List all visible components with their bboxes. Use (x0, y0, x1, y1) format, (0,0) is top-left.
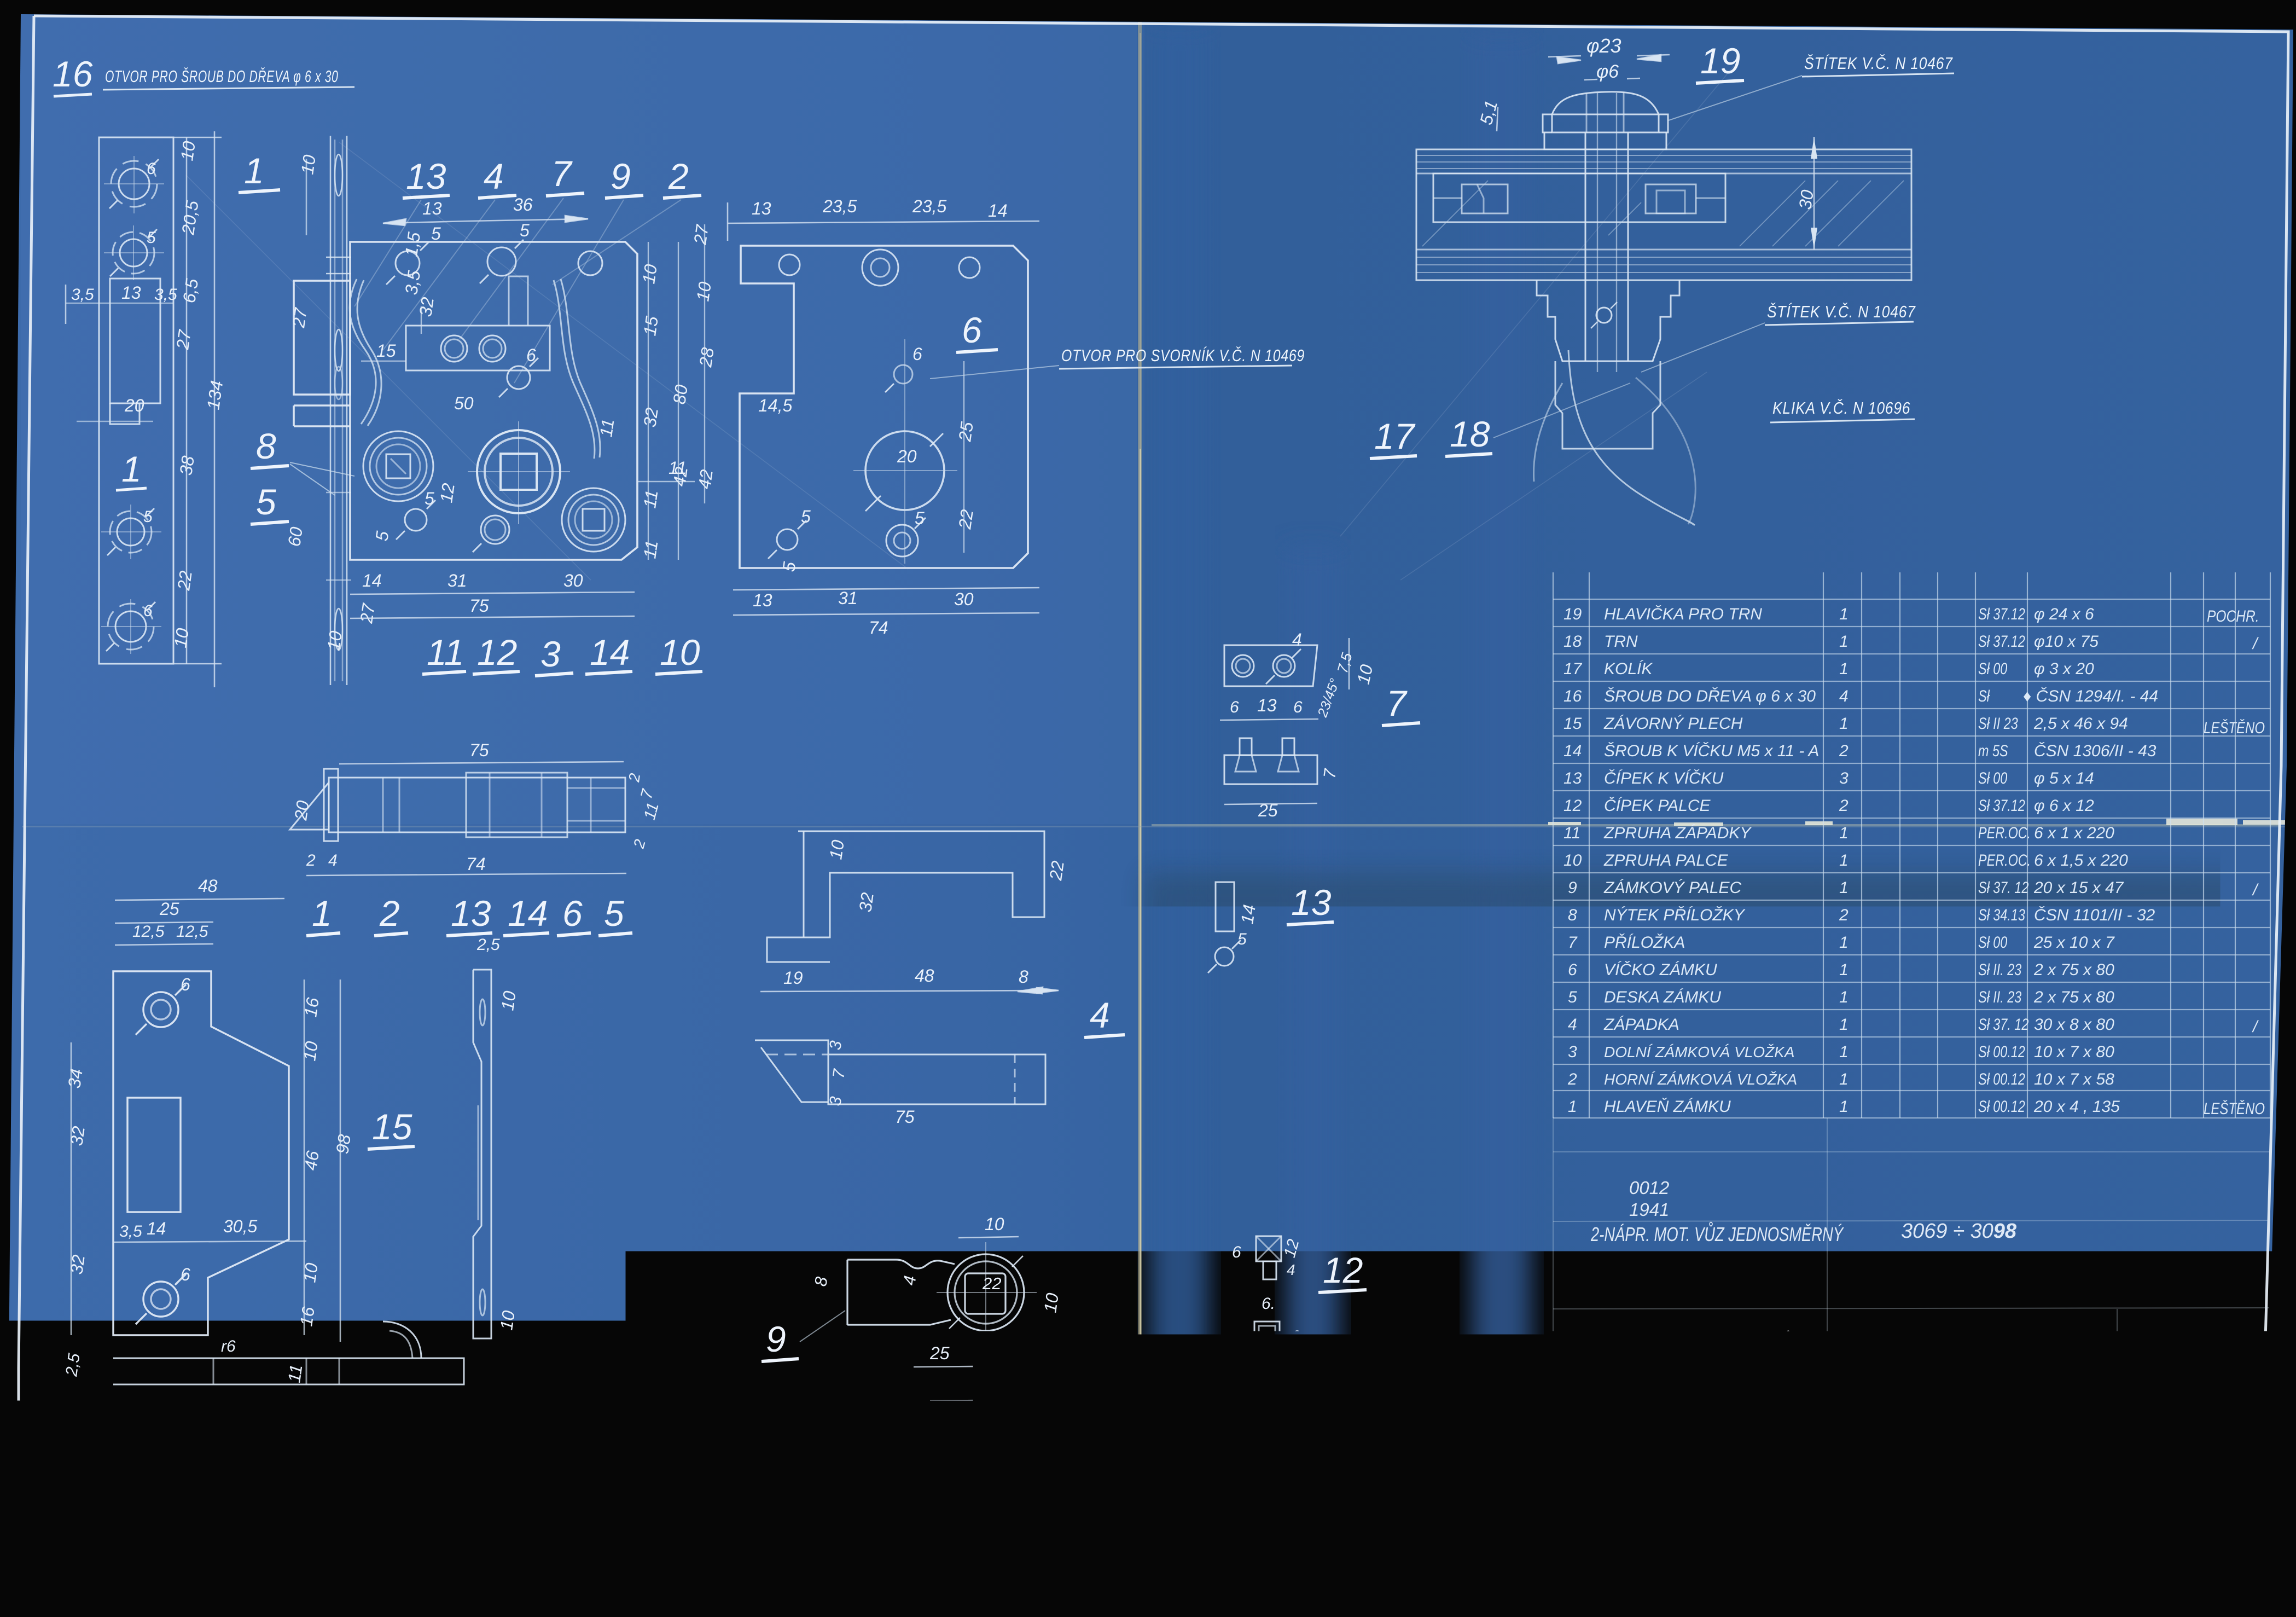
svg-text:3: 3 (1568, 1043, 1577, 1061)
svg-text:27: 27 (356, 602, 379, 625)
svg-text:3: 3 (472, 1463, 481, 1481)
svg-text:1: 1 (1839, 633, 1849, 651)
svg-text:75: 75 (469, 740, 489, 760)
svg-text:ŠROUB DO DŘEVA φ 6 x 30: ŠROUB DO DŘEVA φ 6 x 30 (208, 1596, 393, 1614)
svg-text:Sł 37. 12: Sł 37. 12 (1978, 1015, 2028, 1033)
svg-text:Sł II 23: Sł II 23 (1978, 714, 2018, 732)
svg-text:6: 6 (1232, 1243, 1241, 1261)
svg-text:DOLNÍ ZÁMKOVÁ VLOŽKA: DOLNÍ ZÁMKOVÁ VLOŽKA (1604, 1044, 1795, 1060)
svg-text:20: 20 (897, 447, 917, 466)
svg-text:13: 13 (422, 199, 442, 218)
svg-text:13: 13 (1563, 769, 1582, 787)
svg-text:Sł 34.13: Sł 34.13 (1978, 906, 2025, 924)
svg-text:HLAVEŇ ZÁMKU: HLAVEŇ ZÁMKU (1604, 1098, 1731, 1116)
svg-text:30: 30 (954, 589, 974, 609)
svg-text:8: 8 (1568, 906, 1577, 924)
svg-text:1: 1 (1839, 660, 1849, 678)
svg-text:22: 22 (955, 508, 977, 531)
svg-text:10: 10 (496, 1309, 519, 1331)
svg-text:φ8: φ8 (393, 1487, 416, 1511)
svg-text:10: 10 (299, 1040, 322, 1062)
svg-text:13: 13 (121, 283, 141, 303)
svg-text:2-NÁPR.MOTOROVÝ VŮZ: 2-NÁPR.MOTOROVÝ VŮZ (1561, 1330, 1807, 1371)
svg-text:6: 6 (147, 160, 156, 178)
svg-text:10: 10 (1353, 663, 1377, 686)
svg-text:φ6: φ6 (1596, 61, 1619, 82)
svg-text:60: 60 (284, 526, 306, 548)
svg-text:12,5: 12,5 (132, 923, 165, 941)
svg-text:12: 12 (1563, 797, 1582, 815)
svg-text:6.: 6. (1291, 1328, 1305, 1346)
svg-text:1: 1 (1839, 851, 1849, 870)
svg-text:9: 9 (1568, 879, 1577, 897)
svg-text:6: 6 (1293, 698, 1303, 716)
svg-text:6,5: 6,5 (179, 277, 202, 304)
svg-text:5: 5 (915, 508, 925, 528)
svg-text:16: 16 (296, 1306, 318, 1328)
svg-text:2,5: 2,5 (476, 936, 500, 954)
svg-text:12,5: 12,5 (176, 923, 208, 941)
svg-text:36: 36 (513, 195, 533, 215)
svg-text:Sł II. 23: Sł II. 23 (1978, 960, 2021, 978)
svg-text:10: 10 (638, 263, 661, 285)
svg-text:6: 6 (181, 1265, 190, 1284)
svg-text:134: 134 (203, 379, 226, 411)
svg-text:30: 30 (563, 571, 583, 590)
svg-text:12: 12 (477, 632, 517, 673)
svg-text:LEŠTĚNO: LEŠTĚNO (2204, 1099, 2265, 1117)
svg-text:15: 15 (1563, 715, 1582, 733)
svg-text:2: 2 (668, 156, 689, 196)
svg-text:ZPRUHA ZÁPADKY: ZPRUHA ZÁPADKY (1603, 824, 1752, 842)
svg-text:27: 27 (172, 328, 195, 351)
svg-text:10: 10 (826, 839, 848, 861)
svg-text:28: 28 (484, 1564, 504, 1584)
svg-text:4: 4 (1839, 687, 1849, 705)
svg-text:17: 17 (1374, 416, 1416, 456)
svg-text:Sł: Sł (1978, 687, 1990, 705)
svg-text:10: 10 (693, 281, 715, 303)
svg-text:ČSN 1101/II - 32: ČSN 1101/II - 32 (2034, 906, 2155, 924)
svg-text:16: 16 (1563, 687, 1582, 705)
svg-text:31: 31 (838, 588, 858, 608)
svg-text:3,5: 3,5 (401, 269, 424, 296)
svg-text:φ10 x 75: φ10 x 75 (2034, 633, 2099, 651)
svg-text:11: 11 (1563, 824, 1580, 842)
svg-text:PRŮVODCÍHO.: PRŮVODCÍHO. (1868, 1379, 2045, 1423)
svg-text:16: 16 (53, 54, 93, 94)
svg-text:φ 24 x 6: φ 24 x 6 (2034, 605, 2094, 623)
svg-text:11: 11 (640, 489, 661, 509)
svg-text:37: 37 (624, 1562, 644, 1582)
svg-text:31: 31 (447, 571, 467, 590)
svg-text:20: 20 (124, 396, 144, 415)
svg-text:25: 25 (929, 1343, 950, 1363)
svg-text:38: 38 (176, 455, 198, 477)
svg-text:2: 2 (379, 893, 400, 934)
svg-text:Sł 37.12: Sł 37.12 (1978, 632, 2025, 650)
svg-text:10: 10 (1563, 851, 1582, 870)
svg-text:ŠROUB K VÍČKU M5 x 11 - A: ŠROUB K VÍČKU M5 x 11 - A (1604, 741, 1819, 760)
svg-text:5: 5 (1237, 930, 1247, 948)
svg-text:2: 2 (1567, 1070, 1577, 1088)
svg-text:Sł 37.12: Sł 37.12 (1978, 605, 2025, 623)
svg-text:φ6: φ6 (694, 1492, 717, 1516)
svg-text:10: 10 (993, 1343, 1013, 1363)
svg-text:6: 6 (1230, 698, 1239, 716)
svg-text:Sł 37. 12: Sł 37. 12 (1978, 878, 2028, 896)
svg-text:1: 1 (1568, 1098, 1577, 1116)
svg-text:14: 14 (590, 632, 630, 673)
svg-text:Sł 00: Sł 00 (1978, 769, 2007, 787)
svg-text:10: 10 (177, 140, 199, 162)
svg-text:2: 2 (1839, 797, 1849, 815)
svg-text:5: 5 (801, 507, 811, 526)
svg-text:27: 27 (288, 306, 311, 329)
svg-text:10 x 7 x 80: 10 x 7 x 80 (2034, 1043, 2114, 1061)
svg-text:1: 1 (1839, 988, 1849, 1006)
svg-text:OTVOR PRO SVORNÍK V.Č. N 1: OTVOR PRO SVORNÍK V.Č. N 10469 (1061, 346, 1305, 364)
svg-text:19: 19 (1700, 40, 1740, 81)
svg-text:ZÁVORNÝ PLECH: ZÁVORNÝ PLECH (1603, 715, 1743, 733)
svg-text:m 5S: m 5S (1978, 741, 2008, 760)
svg-text:10: 10 (723, 1562, 743, 1582)
svg-text:1: 1 (1839, 934, 1849, 952)
svg-text:32: 32 (415, 296, 438, 318)
svg-text:ZPRUHA PALCE: ZPRUHA PALCE (1603, 851, 1729, 870)
svg-text:HORNÍ ZÁMKOVÁ VLOŽKA: HORNÍ ZÁMKOVÁ VLOŽKA (1604, 1071, 1797, 1088)
svg-text:1: 1 (1839, 1043, 1849, 1061)
svg-text:23,5: 23,5 (912, 196, 946, 216)
svg-text:Sł 00.12: Sł 00.12 (1978, 1070, 2025, 1088)
svg-text:ŠROUB DO DŘEVA φ 6 x 30: ŠROUB DO DŘEVA φ 6 x 30 (1604, 687, 1816, 705)
svg-text:12: 12 (436, 482, 458, 504)
svg-text:7: 7 (1568, 934, 1578, 952)
svg-text:12: 12 (1055, 1438, 1078, 1460)
svg-text:PODLE LIŠTY: PODLE LIŠTY (283, 1502, 370, 1521)
svg-text:14: 14 (988, 201, 1008, 221)
svg-text:28: 28 (695, 346, 718, 369)
svg-text:98: 98 (332, 1133, 354, 1155)
svg-text:6 x 1 x 220: 6 x 1 x 220 (2034, 824, 2114, 842)
svg-text:2 x 75 x 80: 2 x 75 x 80 (2033, 988, 2114, 1006)
svg-text:6: 6 (143, 602, 153, 620)
svg-text:9: 9 (766, 1319, 786, 1359)
svg-text:74: 74 (466, 854, 486, 874)
svg-text:12: 12 (457, 1518, 476, 1536)
svg-text:10: 10 (297, 154, 319, 176)
svg-text:φ 6 x 12: φ 6 x 12 (2034, 797, 2094, 815)
svg-text:17: 17 (1563, 660, 1583, 678)
svg-text:22: 22 (173, 570, 196, 592)
svg-text:25 x 10 x 7: 25 x 10 x 7 (2033, 934, 2115, 952)
svg-text:Sł 00.12: Sł 00.12 (1978, 1097, 2025, 1115)
svg-text:14,5: 14,5 (758, 396, 792, 415)
svg-text:1: 1 (1839, 824, 1849, 842)
svg-text:42: 42 (669, 466, 691, 488)
svg-text:20: 20 (976, 1380, 997, 1399)
svg-text:2: 2 (306, 851, 316, 870)
svg-text:3,5: 3,5 (119, 1222, 142, 1241)
svg-text:32: 32 (640, 407, 662, 428)
svg-text:13: 13 (752, 199, 771, 218)
svg-text:1: 1 (1839, 961, 1849, 979)
svg-text:10: 10 (723, 1593, 743, 1613)
svg-text:32: 32 (855, 891, 877, 913)
svg-text:34: 34 (64, 1068, 86, 1089)
svg-text:2,5 x 46 x 94: 2,5 x 46 x 94 (2033, 715, 2128, 733)
svg-text:1941: 1941 (1629, 1199, 1669, 1220)
svg-text:20: 20 (290, 799, 313, 822)
svg-text:5: 5 (147, 229, 156, 247)
svg-text:3: 3 (1839, 769, 1849, 787)
svg-text:KOLÍK: KOLÍK (1604, 660, 1653, 678)
svg-text:7: 7 (1386, 683, 1408, 723)
svg-text:JEDNOSMĚRNÝ.: JEDNOSMĚRNÝ. (1602, 1377, 1770, 1415)
svg-text:80: 80 (669, 384, 691, 405)
svg-text:8: 8 (256, 426, 276, 466)
svg-text:11: 11 (427, 632, 464, 673)
svg-text:POCHR.: POCHR. (2207, 607, 2259, 625)
svg-text:4: 4 (328, 851, 338, 870)
svg-text:74: 74 (869, 618, 888, 637)
svg-text:6 x 1,5 x 220: 6 x 1,5 x 220 (2034, 851, 2128, 870)
svg-text:32: 32 (66, 1254, 89, 1276)
svg-text:1: 1 (1839, 1070, 1849, 1088)
svg-text:22: 22 (982, 1274, 1001, 1293)
svg-text:5: 5 (1568, 988, 1577, 1006)
svg-text:ČÍPEK PALCE: ČÍPEK PALCE (1604, 796, 1711, 815)
svg-text:6: 6 (526, 345, 536, 365)
svg-text:13: 13 (1257, 696, 1277, 715)
svg-text:5: 5 (256, 482, 276, 522)
svg-text:22: 22 (1045, 860, 1068, 882)
svg-text:PER.OC.: PER.OC. (1978, 824, 2031, 842)
svg-text:VÍČKO ZÁMKU: VÍČKO ZÁMKU (1604, 960, 1717, 979)
svg-text:11: 11 (596, 418, 618, 438)
svg-text:φ 3 x 20: φ 3 x 20 (2034, 660, 2094, 678)
svg-text:10: 10 (985, 1214, 1004, 1234)
svg-text:50: 50 (454, 393, 474, 413)
svg-text:ŠTÍTEK V.Č. N 10467: ŠTÍTEK V.Č. N 10467 (1767, 302, 1916, 322)
svg-text:NÝTEK PŘÍLOŽKY: NÝTEK PŘÍLOŽKY (1604, 906, 1746, 924)
svg-text:φ23: φ23 (1586, 34, 1621, 57)
svg-text:15: 15 (372, 1106, 412, 1147)
svg-text:ZÁPADKA: ZÁPADKA (1603, 1016, 1679, 1034)
svg-text:9: 9 (611, 156, 631, 196)
svg-text:1: 1 (1839, 605, 1849, 623)
svg-text:PŘÍLOŽKA: PŘÍLOŽKA (1604, 934, 1685, 952)
svg-text:1: 1 (1839, 879, 1849, 897)
svg-text:37: 37 (906, 1481, 926, 1501)
svg-text:1: 1 (1839, 715, 1849, 733)
svg-text:4: 4 (1287, 1261, 1295, 1278)
svg-text:1: 1 (1839, 1016, 1849, 1034)
svg-text:φ 5 x 14: φ 5 x 14 (2034, 769, 2094, 787)
svg-text:11: 11 (284, 1363, 306, 1384)
svg-text:75: 75 (469, 596, 489, 616)
svg-text:r6: r6 (221, 1337, 236, 1355)
svg-text:4: 4 (1568, 1016, 1577, 1034)
svg-text:1: 1 (1839, 1098, 1849, 1116)
svg-text:13: 13 (451, 893, 491, 934)
svg-text:18: 18 (597, 1424, 638, 1464)
svg-text:15: 15 (640, 315, 662, 337)
svg-text:48: 48 (198, 876, 218, 896)
svg-text:X/c: X/c (1987, 1459, 2021, 1485)
svg-text:42: 42 (694, 468, 717, 490)
svg-text:KLIKA V.Č. N 10696: KLIKA V.Č. N 10696 (1772, 398, 1910, 418)
svg-text:3: 3 (540, 634, 561, 674)
svg-text:10: 10 (170, 627, 193, 649)
svg-text:Sł 00: Sł 00 (1978, 659, 2007, 677)
svg-text:2,5: 2,5 (62, 1352, 84, 1378)
svg-text:20 x 15 x 47: 20 x 15 x 47 (2033, 879, 2124, 897)
svg-text:OTVOR PRO ŠROUB DO DŘEVA: OTVOR PRO ŠROUB DO DŘEVA φ 6 x 30 (105, 67, 339, 86)
svg-text:5: 5 (604, 893, 624, 934)
svg-text:7: 7 (551, 153, 573, 194)
svg-text:ČÍPEK K VÍČKU: ČÍPEK K VÍČKU (1604, 769, 1724, 787)
svg-text:14: 14 (147, 1219, 166, 1238)
svg-text:14: 14 (508, 893, 548, 934)
svg-text:DESKA ZÁMKU: DESKA ZÁMKU (1604, 988, 1721, 1006)
svg-text:30 x 8 x 80: 30 x 8 x 80 (2034, 1016, 2114, 1034)
svg-text:5: 5 (143, 508, 153, 526)
svg-text:HLAVIČKA PRO TRN: HLAVIČKA PRO TRN (1604, 605, 1762, 623)
svg-text:14: 14 (362, 571, 382, 590)
svg-text:10: 10 (323, 630, 346, 652)
svg-text:0012: 0012 (1629, 1178, 1669, 1198)
svg-text:3069 ÷ 3098: 3069 ÷ 3098 (1901, 1220, 2017, 1243)
svg-text:13: 13 (406, 156, 446, 196)
svg-text:19: 19 (783, 968, 803, 988)
svg-text:1: 1 (312, 893, 332, 934)
svg-text:ČSN 1306/II - 43: ČSN 1306/II - 43 (2034, 741, 2157, 760)
svg-text:25: 25 (159, 899, 179, 919)
svg-text:ŠTÍTEK V.Č. N 10467: ŠTÍTEK V.Č. N 10467 (1804, 53, 1953, 73)
svg-text:15: 15 (376, 341, 396, 361)
svg-text:♦ ČSN 1294/I. - 44: ♦ ČSN 1294/I. - 44 (2023, 687, 2158, 705)
svg-text:5: 5 (520, 221, 530, 240)
svg-text:2: 2 (1839, 742, 1849, 760)
svg-text:89537: 89537 (2027, 1425, 2154, 1487)
svg-text:6: 6 (181, 975, 190, 994)
svg-text:10: 10 (497, 990, 520, 1012)
svg-text:25: 25 (955, 421, 977, 443)
svg-text:Sł 00.12: Sł 00.12 (1978, 1042, 2025, 1060)
svg-text:5: 5 (431, 224, 441, 244)
svg-text:2-NÁPR. MOT. VŮZ JEDNOSMĚRNÝ: 2-NÁPR. MOT. VŮZ JEDNOSMĚRNÝ (1590, 1222, 1844, 1245)
svg-text:4: 4 (484, 156, 504, 196)
svg-text:6: 6 (1568, 961, 1577, 979)
svg-text:1: 1 (121, 449, 142, 489)
svg-text:Sł 00: Sł 00 (1978, 933, 2007, 951)
svg-text:20 x 4 , 135: 20 x 4 , 135 (2033, 1098, 2120, 1116)
svg-text:6: 6 (912, 344, 922, 364)
svg-text:7. II. 48.: 7. II. 48. (1903, 1465, 1956, 1486)
svg-text:30,5: 30,5 (223, 1216, 257, 1236)
svg-text:48: 48 (915, 966, 934, 986)
svg-text:3,5: 3,5 (71, 286, 94, 304)
svg-text:10: 10 (299, 1262, 322, 1284)
svg-text:ZÁMKOVÝ PALEC: ZÁMKOVÝ PALEC (1603, 879, 1742, 897)
svg-text:6: 6 (962, 310, 982, 350)
svg-text:18: 18 (1450, 414, 1490, 454)
svg-text:6: 6 (562, 893, 583, 934)
svg-text:32: 32 (66, 1125, 89, 1147)
svg-text:13: 13 (753, 590, 772, 610)
svg-text:1: 1 (244, 150, 264, 191)
svg-text:14: 14 (1563, 742, 1582, 760)
svg-text:4: 4 (1090, 995, 1110, 1035)
svg-text:13: 13 (1291, 882, 1332, 923)
svg-text:1:1: 1:1 (2123, 1361, 2167, 1397)
svg-text:2: 2 (1839, 906, 1849, 924)
svg-text:14: 14 (1237, 903, 1259, 925)
svg-text:18: 18 (1563, 633, 1582, 651)
svg-text:65: 65 (555, 1593, 574, 1613)
svg-text:3,5: 3,5 (154, 286, 177, 304)
svg-text:16: 16 (383, 1581, 423, 1617)
svg-text:ZÁMEK ZÁSTĚNY: ZÁMEK ZÁSTĚNY (1848, 1332, 2061, 1374)
svg-text:10: 10 (1040, 1292, 1062, 1314)
svg-text:5: 5 (425, 489, 434, 508)
svg-text:19: 19 (1563, 605, 1582, 623)
svg-text:38: 38 (174, 1401, 194, 1421)
svg-text:6.: 6. (1262, 1295, 1275, 1313)
svg-text:2 x 75 x 80: 2 x 75 x 80 (2033, 961, 2114, 979)
svg-text:27: 27 (690, 223, 712, 246)
svg-text:12: 12 (1323, 1250, 1363, 1290)
svg-text:4: 4 (1292, 630, 1302, 650)
svg-text:Sł 37.12: Sł 37.12 (1978, 796, 2025, 814)
svg-text:PER.OC.: PER.OC. (1978, 851, 2031, 869)
svg-text:23,5: 23,5 (822, 196, 857, 216)
svg-text:75: 75 (895, 1107, 915, 1127)
svg-text:Sł II. 23: Sł II. 23 (1978, 988, 2021, 1006)
svg-text:LEŠTĚNO: LEŠTĚNO (2204, 718, 2265, 737)
svg-text:10 x 7 x 58: 10 x 7 x 58 (2034, 1070, 2114, 1088)
svg-text:TRN: TRN (1604, 633, 1638, 651)
svg-text:11: 11 (640, 539, 661, 560)
svg-text:1,5: 1,5 (401, 231, 424, 258)
svg-text:8: 8 (1019, 967, 1028, 987)
svg-text:10: 10 (660, 632, 700, 673)
